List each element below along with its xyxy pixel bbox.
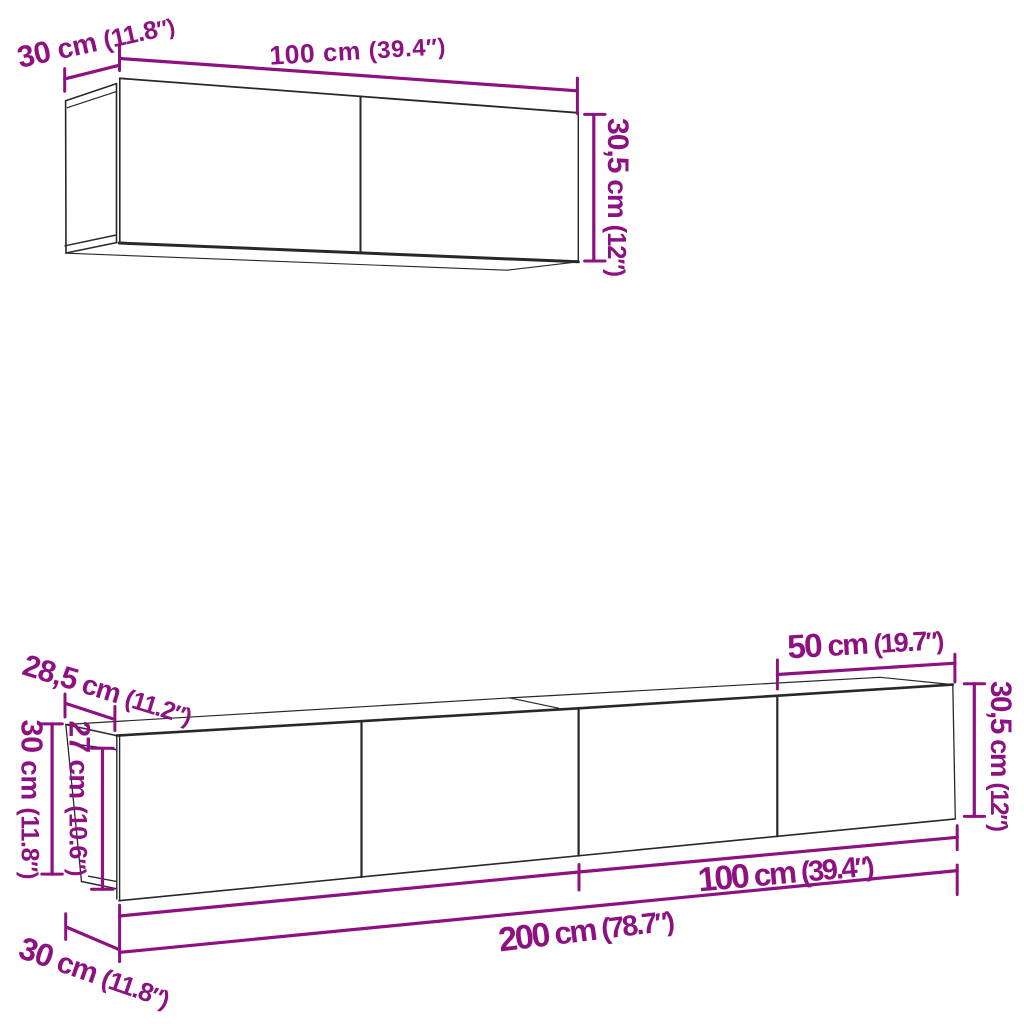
svg-text:30 cm (11.8″): 30 cm (11.8″) xyxy=(15,720,49,880)
svg-text:30,5 cm (12″): 30,5 cm (12″) xyxy=(984,681,1017,831)
svg-text:30,5 cm (12″): 30,5 cm (12″) xyxy=(601,118,634,276)
svg-text:27 cm (10.6″): 27 cm (10.6″) xyxy=(63,721,96,876)
